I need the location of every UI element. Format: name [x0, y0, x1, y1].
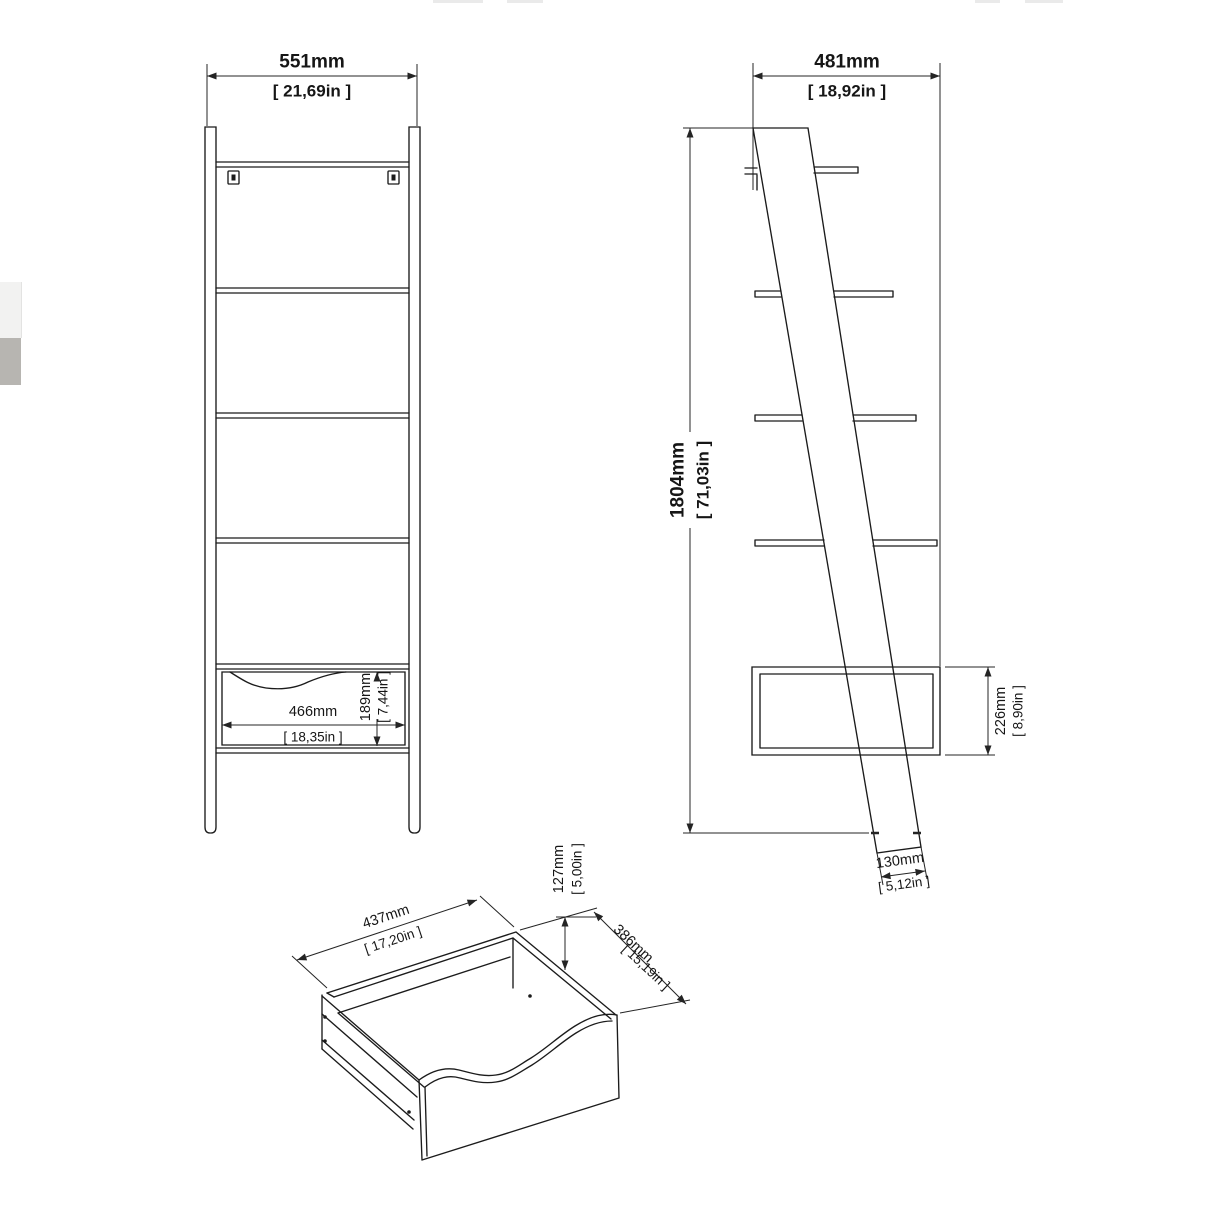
- front-width-in-label: [ 21,69in ]: [273, 82, 351, 101]
- leaning-side-panel: [753, 128, 921, 853]
- furniture-dimension-drawing: 551mm [ 21,69in ]: [0, 0, 1214, 1214]
- top-edge-artifact: [975, 0, 1000, 3]
- left-rail: [205, 127, 216, 833]
- side-depth-mm-label: 481mm: [814, 52, 880, 73]
- drawer-height-mm-label: 189mm: [358, 673, 374, 721]
- front-view: 551mm [ 21,69in ]: [205, 52, 420, 834]
- detail-height-in-label: [ 5,00in ]: [570, 843, 585, 895]
- drawer-left-side: [322, 995, 419, 1129]
- technical-drawing-page: 551mm [ 21,69in ]: [0, 0, 1214, 1214]
- drawer-height-dimension: 127mm [ 5,00in ]: [551, 843, 596, 970]
- side-view: 481mm [ 18,92in ]: [668, 52, 1026, 895]
- front-width-mm-label: 551mm: [279, 52, 345, 73]
- drawer-handle-wave: [230, 672, 346, 689]
- drawer-height-in-label: [ 7,44in ]: [376, 671, 391, 723]
- drawer-section-in-label: [ 8,90in ]: [1011, 685, 1026, 737]
- side-drawer-box: [752, 667, 940, 755]
- left-edge-artifact-light: [0, 282, 22, 338]
- side-depth-in-label: [ 18,92in ]: [808, 82, 886, 101]
- wall-bracket-icon: [228, 171, 239, 184]
- top-edge-artifact: [433, 0, 483, 3]
- top-edge-artifact: [507, 0, 543, 3]
- side-height-in-label: [ 71,03in ]: [694, 441, 713, 519]
- wall-bracket-icon: [388, 171, 399, 184]
- drawer-isometric: [322, 932, 619, 1160]
- drawer-detail-view: 437mm [ 17,20in ] 127mm [ 5,00in ] 386mm…: [292, 843, 690, 1160]
- drawer-section-mm-label: 226mm: [993, 687, 1009, 735]
- panel-width-mm-label: 130mm: [875, 850, 925, 872]
- side-height-dimension: 1804mm [ 71,03in ]: [668, 128, 922, 833]
- front-drawer-height-dimension: 189mm [ 7,44in ]: [358, 671, 391, 746]
- drawer-interior-lines: [338, 957, 510, 1087]
- left-edge-artifact-dark: [0, 338, 21, 385]
- drawer-front-wave-outer: [419, 1014, 617, 1080]
- front-structure: [205, 127, 420, 833]
- drawer-depth-dimension: 386mm [ 15,19in ]: [520, 908, 690, 1013]
- drawer-width-mm-label: 466mm: [289, 704, 337, 720]
- drawer-front-wave-inner: [425, 1021, 612, 1087]
- front-width-dimension: 551mm [ 21,69in ]: [207, 52, 417, 127]
- side-shelf-edges: [745, 167, 937, 546]
- side-height-mm-label: 1804mm: [668, 442, 689, 518]
- shelf-lines: [216, 162, 409, 753]
- side-depth-dimension: 481mm [ 18,92in ]: [753, 52, 940, 667]
- drawer-front-panel: [419, 1014, 619, 1160]
- drawer-width-in-label: [ 18,35in ]: [283, 730, 342, 745]
- detail-height-mm-label: 127mm: [551, 845, 567, 893]
- side-drawer-section-dimension: 226mm [ 8,90in ]: [945, 667, 1026, 755]
- side-structure: [745, 128, 940, 853]
- side-panel-width-dimension: 130mm [ 5,12in ]: [875, 847, 931, 895]
- top-edge-artifact: [1025, 0, 1063, 3]
- right-rail: [409, 127, 420, 833]
